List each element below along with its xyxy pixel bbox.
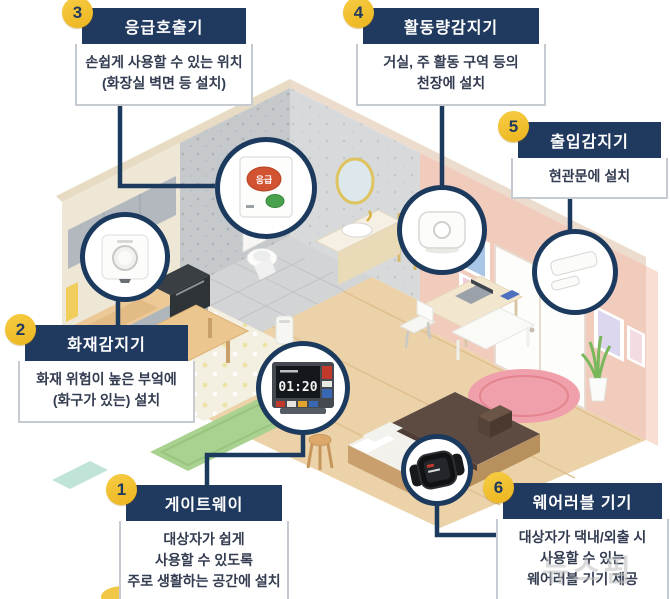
callout-number-badge: 5 bbox=[498, 111, 529, 142]
fire-detector-circle bbox=[80, 212, 170, 302]
wearable-watch-icon bbox=[409, 445, 465, 495]
callout-title: 출입감지기 bbox=[518, 122, 661, 158]
callout-emergency-call: 3 응급호출기 손쉽게 사용할 수 있는 위치 (화장실 벽면 등 설치) bbox=[75, 8, 253, 106]
callout-title: 활동량감지기 bbox=[363, 8, 539, 44]
connector-gateway bbox=[207, 432, 303, 489]
gateway-device-icon: 01:20 bbox=[270, 360, 336, 416]
infographic-canvas: 응급 bbox=[0, 0, 670, 599]
callout-title: 응급호출기 bbox=[82, 8, 246, 44]
callout-title: 게이트웨이 bbox=[126, 485, 282, 521]
callout-title: 웨어러블 기기 bbox=[503, 483, 662, 519]
callout-number-badge: 6 bbox=[483, 472, 514, 503]
callout-description: 대상자가 쉽게 사용할 수 있도록 주로 생활하는 공간에 설치 bbox=[119, 521, 289, 599]
callout-entry-sensor: 5 출입감지기 현관문에 설치 bbox=[511, 122, 668, 199]
callout-description: 대상자가 댁내/외출 시 사용할 수 있는 웨어러블 기기 제공 bbox=[496, 519, 669, 599]
callout-number-badge: 2 bbox=[5, 314, 36, 345]
callout-number-badge: 1 bbox=[106, 474, 137, 505]
callout-activity-sensor: 4 활동량감지기 거실, 주 활동 구역 등의 천장에 설치 bbox=[356, 8, 546, 106]
callout-wearable: 6 웨어러블 기기 대상자가 댁내/외출 시 사용할 수 있는 웨어러블 기기 … bbox=[496, 483, 669, 599]
entry-sensor-icon bbox=[543, 248, 607, 296]
connector-wearable bbox=[437, 502, 498, 535]
callout-gateway: 1 게이트웨이 대상자가 쉽게 사용할 수 있도록 주로 생활하는 공간에 설치 bbox=[119, 485, 289, 599]
callout-fire-detector: 2 화재감지기 화재 위험이 높은 부엌에 (화구가 있는) 설치 bbox=[18, 325, 195, 423]
callout-description: 화재 위험이 높은 부엌에 (화구가 있는) 설치 bbox=[18, 361, 195, 423]
emergency-button-label: 응급 bbox=[256, 175, 273, 185]
callout-description: 현관문에 설치 bbox=[511, 158, 668, 199]
activity-sensor-circle bbox=[397, 185, 487, 275]
entry-sensor-circle bbox=[532, 229, 618, 315]
wearable-device-circle bbox=[401, 434, 473, 506]
gateway-device-circle: 01:20 bbox=[256, 341, 350, 435]
emergency-call-device-circle: 응급 bbox=[215, 137, 317, 239]
fire-detector-icon bbox=[97, 229, 153, 285]
gateway-screen-time: 01:20 bbox=[278, 380, 317, 395]
emergency-call-icon: 응급 bbox=[234, 153, 298, 223]
activity-sensor-icon bbox=[413, 204, 471, 256]
connector-emergency bbox=[120, 104, 215, 186]
callout-description: 거실, 주 활동 구역 등의 천장에 설치 bbox=[356, 44, 546, 106]
callout-title: 화재감지기 bbox=[25, 325, 188, 361]
callout-description: 손쉽게 사용할 수 있는 위치 (화장실 벽면 등 설치) bbox=[75, 44, 253, 106]
